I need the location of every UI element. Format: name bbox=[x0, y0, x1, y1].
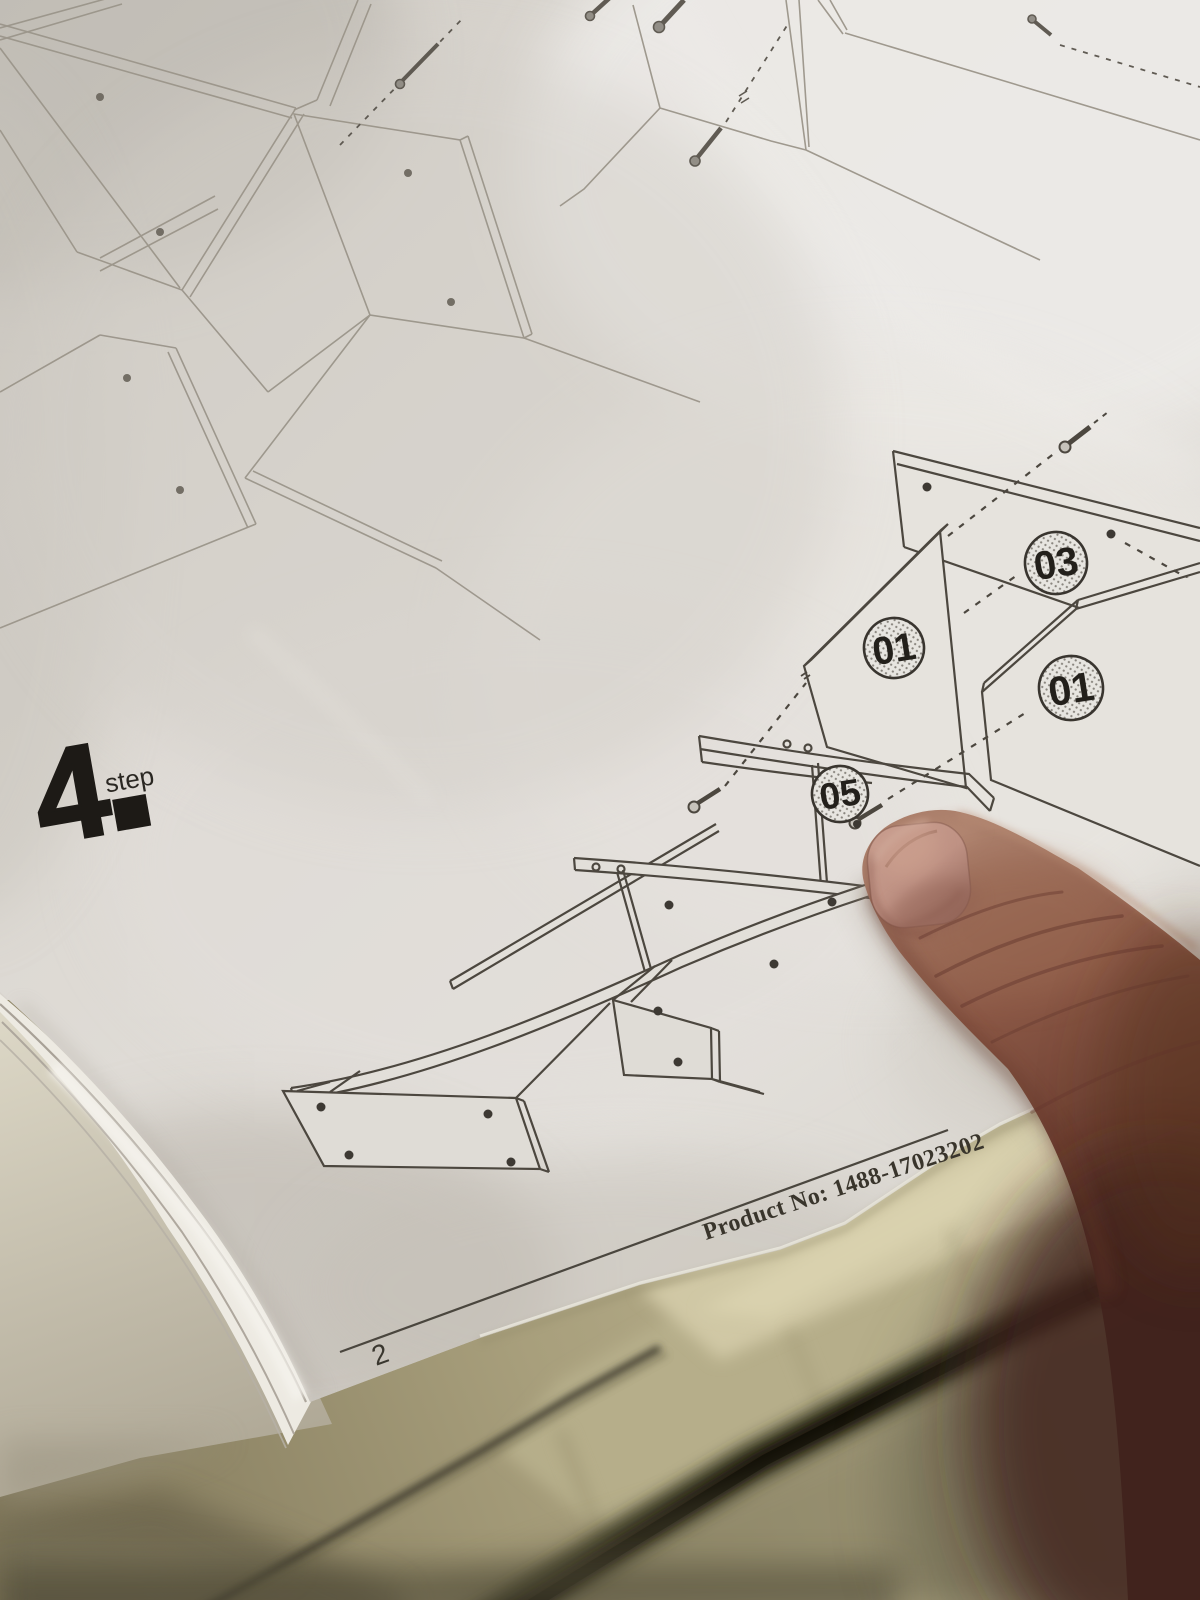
svg-text:03: 03 bbox=[1031, 539, 1082, 589]
svg-text:05: 05 bbox=[817, 771, 864, 818]
svg-text:01: 01 bbox=[869, 625, 919, 674]
svg-text:01: 01 bbox=[1045, 663, 1097, 716]
